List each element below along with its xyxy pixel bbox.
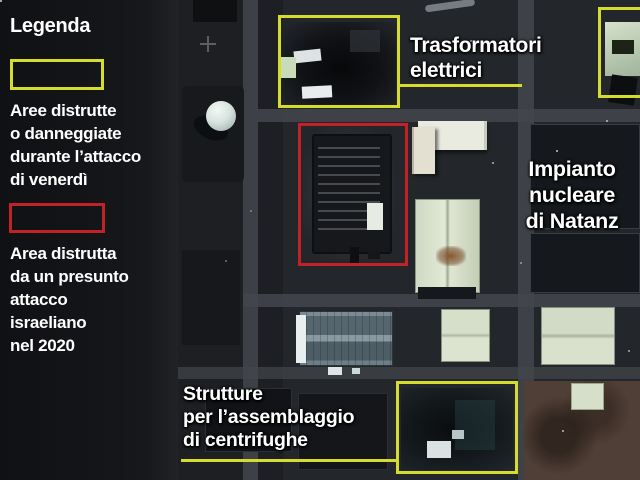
highlight-box-transformers: [278, 15, 400, 108]
dark-field: [530, 233, 640, 293]
terrain-specks: [0, 0, 2, 2]
antenna-mark: [207, 36, 209, 52]
highlight-box-destroyed-2020: [298, 123, 408, 266]
road-horizontal: [178, 367, 640, 379]
blue-building-ribs: [299, 311, 393, 366]
dark-building: [182, 250, 240, 345]
warehouse-gabled: [541, 307, 615, 365]
legend-title: Legenda: [10, 15, 90, 38]
small-structure: [352, 368, 360, 374]
small-building: [571, 383, 604, 410]
small-structure: [328, 367, 342, 375]
facility-title: Impianto nucleare di Natanz: [486, 156, 640, 234]
legend-item-label: Aree distrutte o danneggiate durante l’a…: [10, 99, 175, 191]
legend-swatch-yellow: [10, 59, 104, 90]
label-transformers: Trasformatori elettrici: [410, 33, 541, 83]
news-graphic: Trasformatori elettrici Strutture per l’…: [0, 0, 640, 480]
white-annex: [296, 315, 306, 363]
highlight-box-centrifuges: [396, 381, 518, 474]
highlight-box-topright-building: [598, 7, 640, 98]
warehouse-gabled: [441, 309, 490, 362]
legend-item-label: Area distrutta da un presunto attacco is…: [10, 242, 175, 357]
leader-line-transformers: [399, 84, 522, 87]
legend-swatch-red: [9, 203, 105, 233]
leader-line-centrifuges: [181, 459, 397, 462]
label-centrifuges: Strutture per l’assemblaggio di centrifu…: [183, 383, 354, 452]
dark-building: [193, 0, 237, 22]
building-shadow: [418, 287, 476, 299]
storage-tank: [206, 101, 236, 131]
tan-building: [412, 127, 435, 174]
burn-stain: [436, 246, 466, 266]
